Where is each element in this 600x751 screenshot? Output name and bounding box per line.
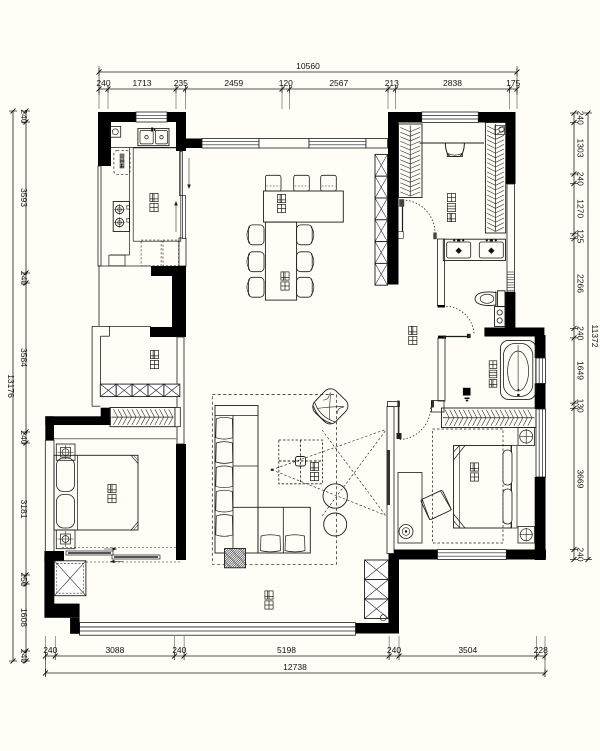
svg-text:240: 240 — [19, 109, 29, 123]
svg-text:240: 240 — [172, 645, 186, 655]
svg-text:125: 125 — [576, 229, 586, 243]
svg-text:3088: 3088 — [105, 645, 124, 655]
svg-text:2266: 2266 — [576, 274, 586, 293]
svg-text:2567: 2567 — [329, 78, 348, 88]
svg-text:1608: 1608 — [19, 608, 29, 627]
svg-text:240: 240 — [96, 78, 110, 88]
svg-text:13176: 13176 — [6, 374, 16, 398]
svg-text:3584: 3584 — [19, 348, 29, 367]
svg-text:3669: 3669 — [576, 469, 586, 488]
svg-text:175: 175 — [506, 78, 520, 88]
svg-text:1303: 1303 — [576, 139, 586, 158]
svg-text:130: 130 — [576, 399, 586, 413]
svg-text:235: 235 — [174, 78, 188, 88]
svg-text:3593: 3593 — [19, 188, 29, 207]
svg-text:3504: 3504 — [458, 645, 477, 655]
svg-text:12738: 12738 — [283, 662, 307, 672]
svg-text:2459: 2459 — [224, 78, 243, 88]
svg-text:2838: 2838 — [443, 78, 462, 88]
svg-text:250: 250 — [19, 572, 29, 586]
svg-text:120: 120 — [279, 78, 293, 88]
svg-text:240: 240 — [576, 172, 586, 186]
svg-text:228: 228 — [534, 645, 548, 655]
svg-text:1270: 1270 — [576, 199, 586, 218]
svg-text:213: 213 — [385, 78, 399, 88]
svg-text:240: 240 — [19, 271, 29, 285]
svg-text:10560: 10560 — [296, 61, 320, 71]
svg-text:1713: 1713 — [133, 78, 152, 88]
svg-text:240: 240 — [576, 326, 586, 340]
svg-text:5198: 5198 — [277, 645, 296, 655]
svg-text:11372: 11372 — [590, 324, 600, 347]
svg-text:3181: 3181 — [19, 500, 29, 519]
svg-text:240: 240 — [19, 430, 29, 444]
svg-text:240: 240 — [19, 649, 29, 663]
svg-text:1649: 1649 — [576, 361, 586, 380]
